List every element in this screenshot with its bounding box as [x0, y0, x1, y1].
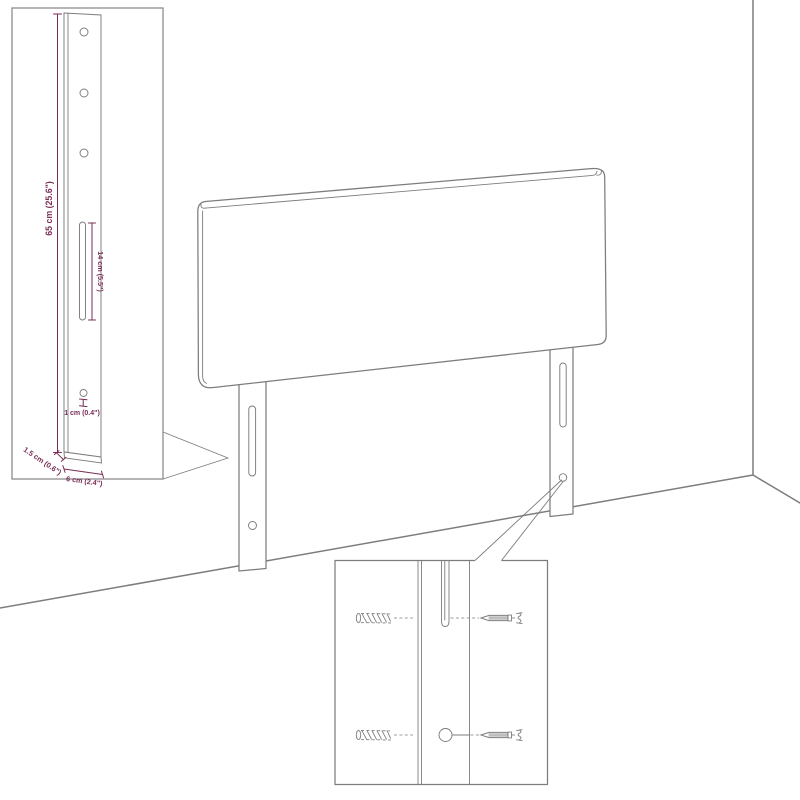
leg-hole-top: [80, 28, 88, 36]
leg-detail-callout-line-bottom: [163, 458, 228, 479]
left-leg: [239, 381, 266, 571]
mounting-detail-callout-line-left: [475, 480, 562, 561]
leg-detail-drawing: [64, 13, 102, 463]
left-leg-hole: [249, 522, 257, 530]
leg-detail-inset: 65 cm (25.6") 14 cm (5.5") 1 cm (0.4") 1…: [12, 8, 163, 488]
right-leg-slot: [560, 363, 566, 427]
leg-hole-middle: [80, 89, 88, 97]
dim-leg-height-label: 65 cm (25.6"): [44, 181, 54, 236]
left-leg-slot: [249, 406, 256, 476]
leg-hole-lower: [80, 149, 88, 157]
strip-round-hole: [439, 729, 452, 742]
leg-detail-callout-line-top: [163, 432, 228, 458]
right-leg: [550, 347, 573, 517]
headboard-panel: [198, 168, 606, 387]
leg-slot: [80, 222, 86, 320]
product-dimension-diagram: 65 cm (25.6") 14 cm (5.5") 1 cm (0.4") 1…: [0, 0, 800, 800]
leg-small-hole: [80, 390, 87, 397]
right-leg-hole: [559, 474, 567, 482]
leg-detail-callout: [163, 432, 228, 479]
mounting-detail-inset: [335, 561, 548, 785]
mounting-detail-callout-line-right: [502, 481, 564, 561]
headboard-outline: [198, 168, 606, 387]
floor-line-right: [753, 475, 800, 503]
dim-slot-length-label: 14 cm (5.5"): [96, 251, 105, 292]
dim-hole-diameter-label: 1 cm (0.4"): [64, 410, 100, 417]
diagram-canvas: 65 cm (25.6") 14 cm (5.5") 1 cm (0.4") 1…: [0, 0, 800, 800]
